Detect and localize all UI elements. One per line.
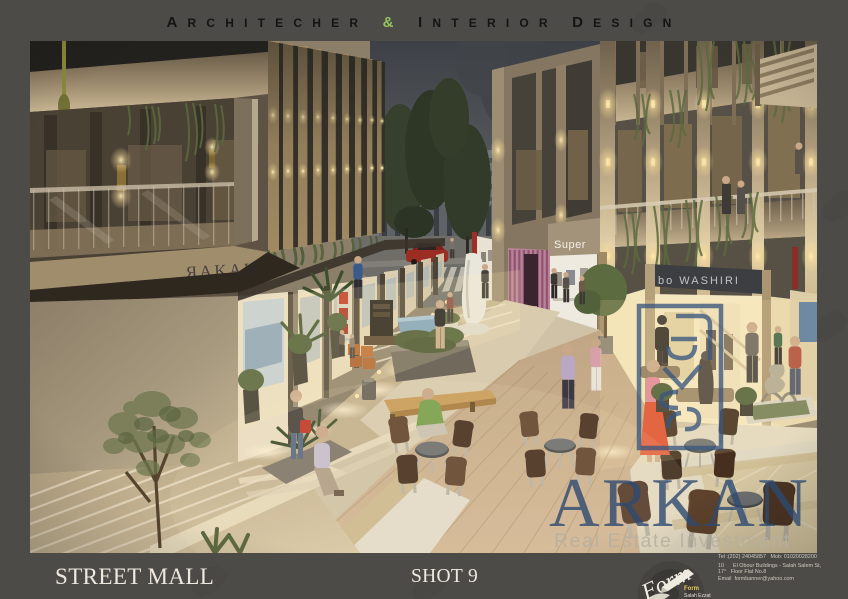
- svg-text:SHOT 9: SHOT 9: [411, 566, 478, 587]
- svg-text:ARCHITECHER & INTERIOR DESIGN: ARCHITECHER & INTERIOR DESIGN: [166, 14, 681, 31]
- svg-text:Real Estate Investment: Real Estate Investment: [554, 530, 791, 552]
- svg-text:Tel :(202) 24045857 Mob: 010: Tel :(202) 24045857 Mob: 01020028200: [718, 554, 817, 560]
- svg-text:Email formbanner@yahoo.com: Email formbanner@yahoo.com: [718, 576, 794, 582]
- svg-text:STREET MALL: STREET MALL: [55, 564, 214, 589]
- svg-text:Form: Form: [684, 586, 699, 592]
- svg-text:Salah Ezzat: Salah Ezzat: [684, 593, 711, 599]
- svg-text:17° Floor Flat No.8: 17° Floor Flat No.8: [718, 569, 766, 575]
